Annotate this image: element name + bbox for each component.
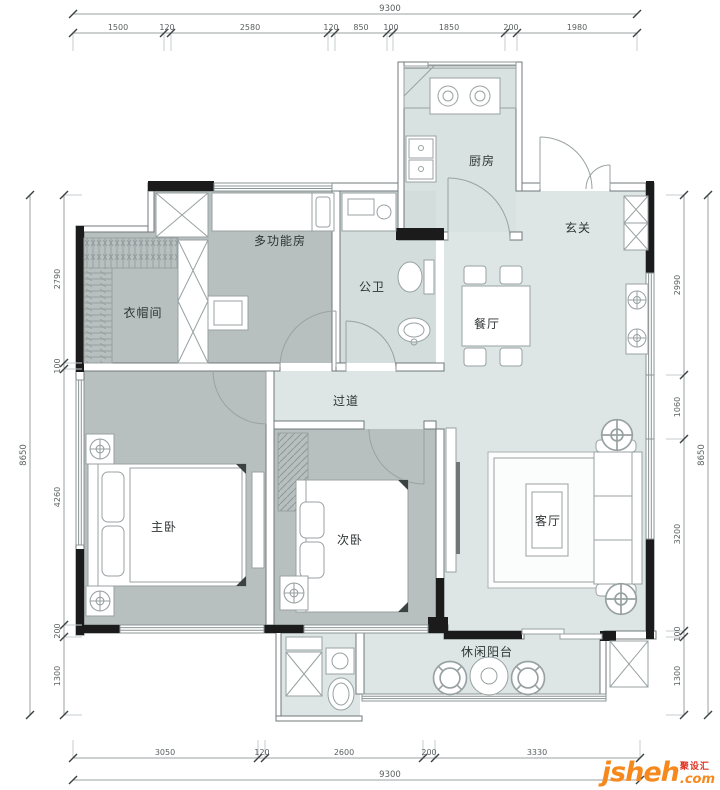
dim-right-4: 1300 [673,666,682,686]
label-bath: 公卫 [359,280,385,294]
dim-bottom-3: 200 [421,748,436,757]
master-nightstand-top [86,434,114,464]
wall-laundry-left [276,629,281,721]
balcony-table [470,657,508,695]
logo-suffix: .com [680,773,715,786]
multi-bed [212,193,334,231]
wall-laundry-bottom [276,716,362,721]
floor-plan-drawing: 9300 1500 120 2580 120 850 100 1850 200 … [0,0,720,790]
logo-tagline: 聚设汇 [680,763,710,772]
label-master: 主卧 [151,520,177,534]
dim-bottom-0: 3050 [155,748,175,757]
dim-top-0: 1500 [108,23,128,32]
label-dining: 餐厅 [474,316,500,331]
wall-black-bottom-a [84,625,120,633]
label-multi: 多功能房 [254,233,306,248]
wall-black-top-left [148,181,214,191]
wall-second-top-l [274,421,364,429]
dim-top-3: 120 [323,23,338,32]
wall-second-top-r [424,421,436,429]
wall-laundry-right [356,629,364,694]
dim-left-0: 2790 [53,269,62,289]
kitchen-sink [406,136,436,182]
label-corridor: 过道 [333,394,359,408]
laundry-tub [328,678,354,710]
wall-balcony-right [600,639,606,696]
balcony-chair-left [434,662,467,695]
dim-top-2: 2580 [240,23,260,32]
water-heater [326,648,354,674]
window-master-bottom [120,625,264,633]
dim-top-6: 1850 [439,23,459,32]
wall-multi-left [148,191,154,232]
wall-cloak-top [76,226,152,232]
dim-top-7: 200 [503,23,518,32]
dim-bottom-4: 3330 [527,748,547,757]
dim-right-1: 1060 [673,397,682,417]
master-tv-console [252,472,264,568]
toilet [398,260,434,294]
wall-kitchen-right [516,62,522,191]
label-living: 客厅 [535,513,561,528]
wall-black-right-lower [646,539,654,639]
cloak-rack-left [84,268,112,363]
floor-plan-page: 9300 1500 120 2580 120 850 100 1850 200 … [0,0,720,790]
dim-top-5: 100 [383,23,398,32]
wall-kitchen-left [398,62,404,240]
wall-mid-a [76,363,280,371]
dim-right-3: 100 [673,626,682,641]
logo-brand: jsheh [602,759,679,786]
dim-top-4: 850 [353,23,368,32]
label-entry: 玄关 [565,220,591,235]
label-cloak: 衣帽间 [123,305,162,320]
wall-master-right [266,371,274,633]
dim-right-overall: 8650 [697,444,707,466]
dim-top-1: 120 [159,23,174,32]
dim-left-overall: 8650 [19,444,29,466]
multi-desk [208,296,248,330]
balcony-chair-right [512,662,545,695]
label-second: 次卧 [337,533,363,547]
living-plant-bottom [606,584,637,615]
dim-bottom-1: 120 [254,748,269,757]
window-kitchen-top [428,62,516,68]
washing-machine [286,652,322,696]
dim-top-overall: 9300 [379,4,401,14]
dim-left-1: 100 [53,358,62,373]
entry-door [540,137,610,189]
wall-kitchen-bottom-r [510,232,522,240]
ac-platform [610,641,648,687]
dim-left-3: 200 [53,623,62,638]
laundry-cabinet [286,637,322,650]
entry-shoe-cabinet [624,196,648,250]
wall-black-left-lower [76,549,84,635]
sofa [594,440,642,596]
window-master-left [76,380,84,545]
wall-black-left-upper [76,226,84,372]
site-logo: jsheh 聚设汇 .com [602,759,715,786]
label-balcony: 休闲阳台 [461,644,513,659]
wall-black-kitchen [396,228,444,240]
wall-black-bottom-b [264,625,304,633]
dim-left-2: 4260 [53,487,62,507]
dining-plant-shelf [626,284,648,354]
window-multi-top [214,183,332,191]
dim-bottom-2: 2600 [334,748,354,757]
multi-cabinet-column [178,240,208,363]
wall-mid-c [396,363,444,371]
wall-mid-b [336,363,346,371]
master-nightstand-bottom [86,586,114,616]
window-second-bottom [304,625,428,633]
floors [84,66,646,721]
living-plant-top [602,420,633,451]
dim-right-2: 3200 [673,524,682,544]
dim-top-8: 1980 [567,23,587,32]
dining-table [462,286,530,346]
wall-black-living-bottom [444,631,522,639]
second-nightstand [280,576,308,610]
multi-cabinet-top [156,193,208,237]
wall-black-second-right [436,578,444,633]
window-balcony-railing [362,694,606,701]
dim-right-0: 2990 [673,275,682,295]
cloak-rack-top [84,238,178,268]
dim-bottom-overall: 9300 [379,770,401,780]
dim-left-4: 1300 [53,666,62,686]
label-kitchen: 厨房 [469,153,495,168]
